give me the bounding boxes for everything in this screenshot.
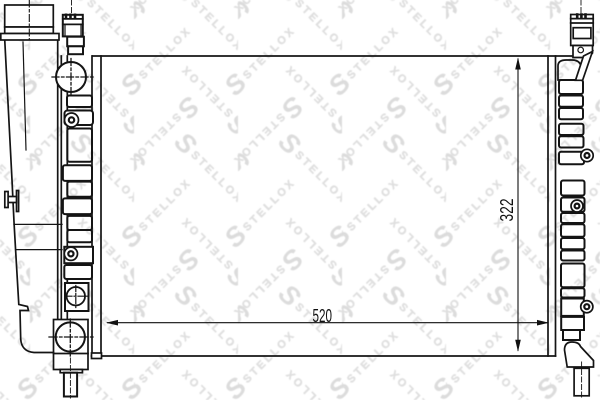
svg-text:322: 322 <box>496 199 517 222</box>
svg-text:520: 520 <box>312 305 332 326</box>
